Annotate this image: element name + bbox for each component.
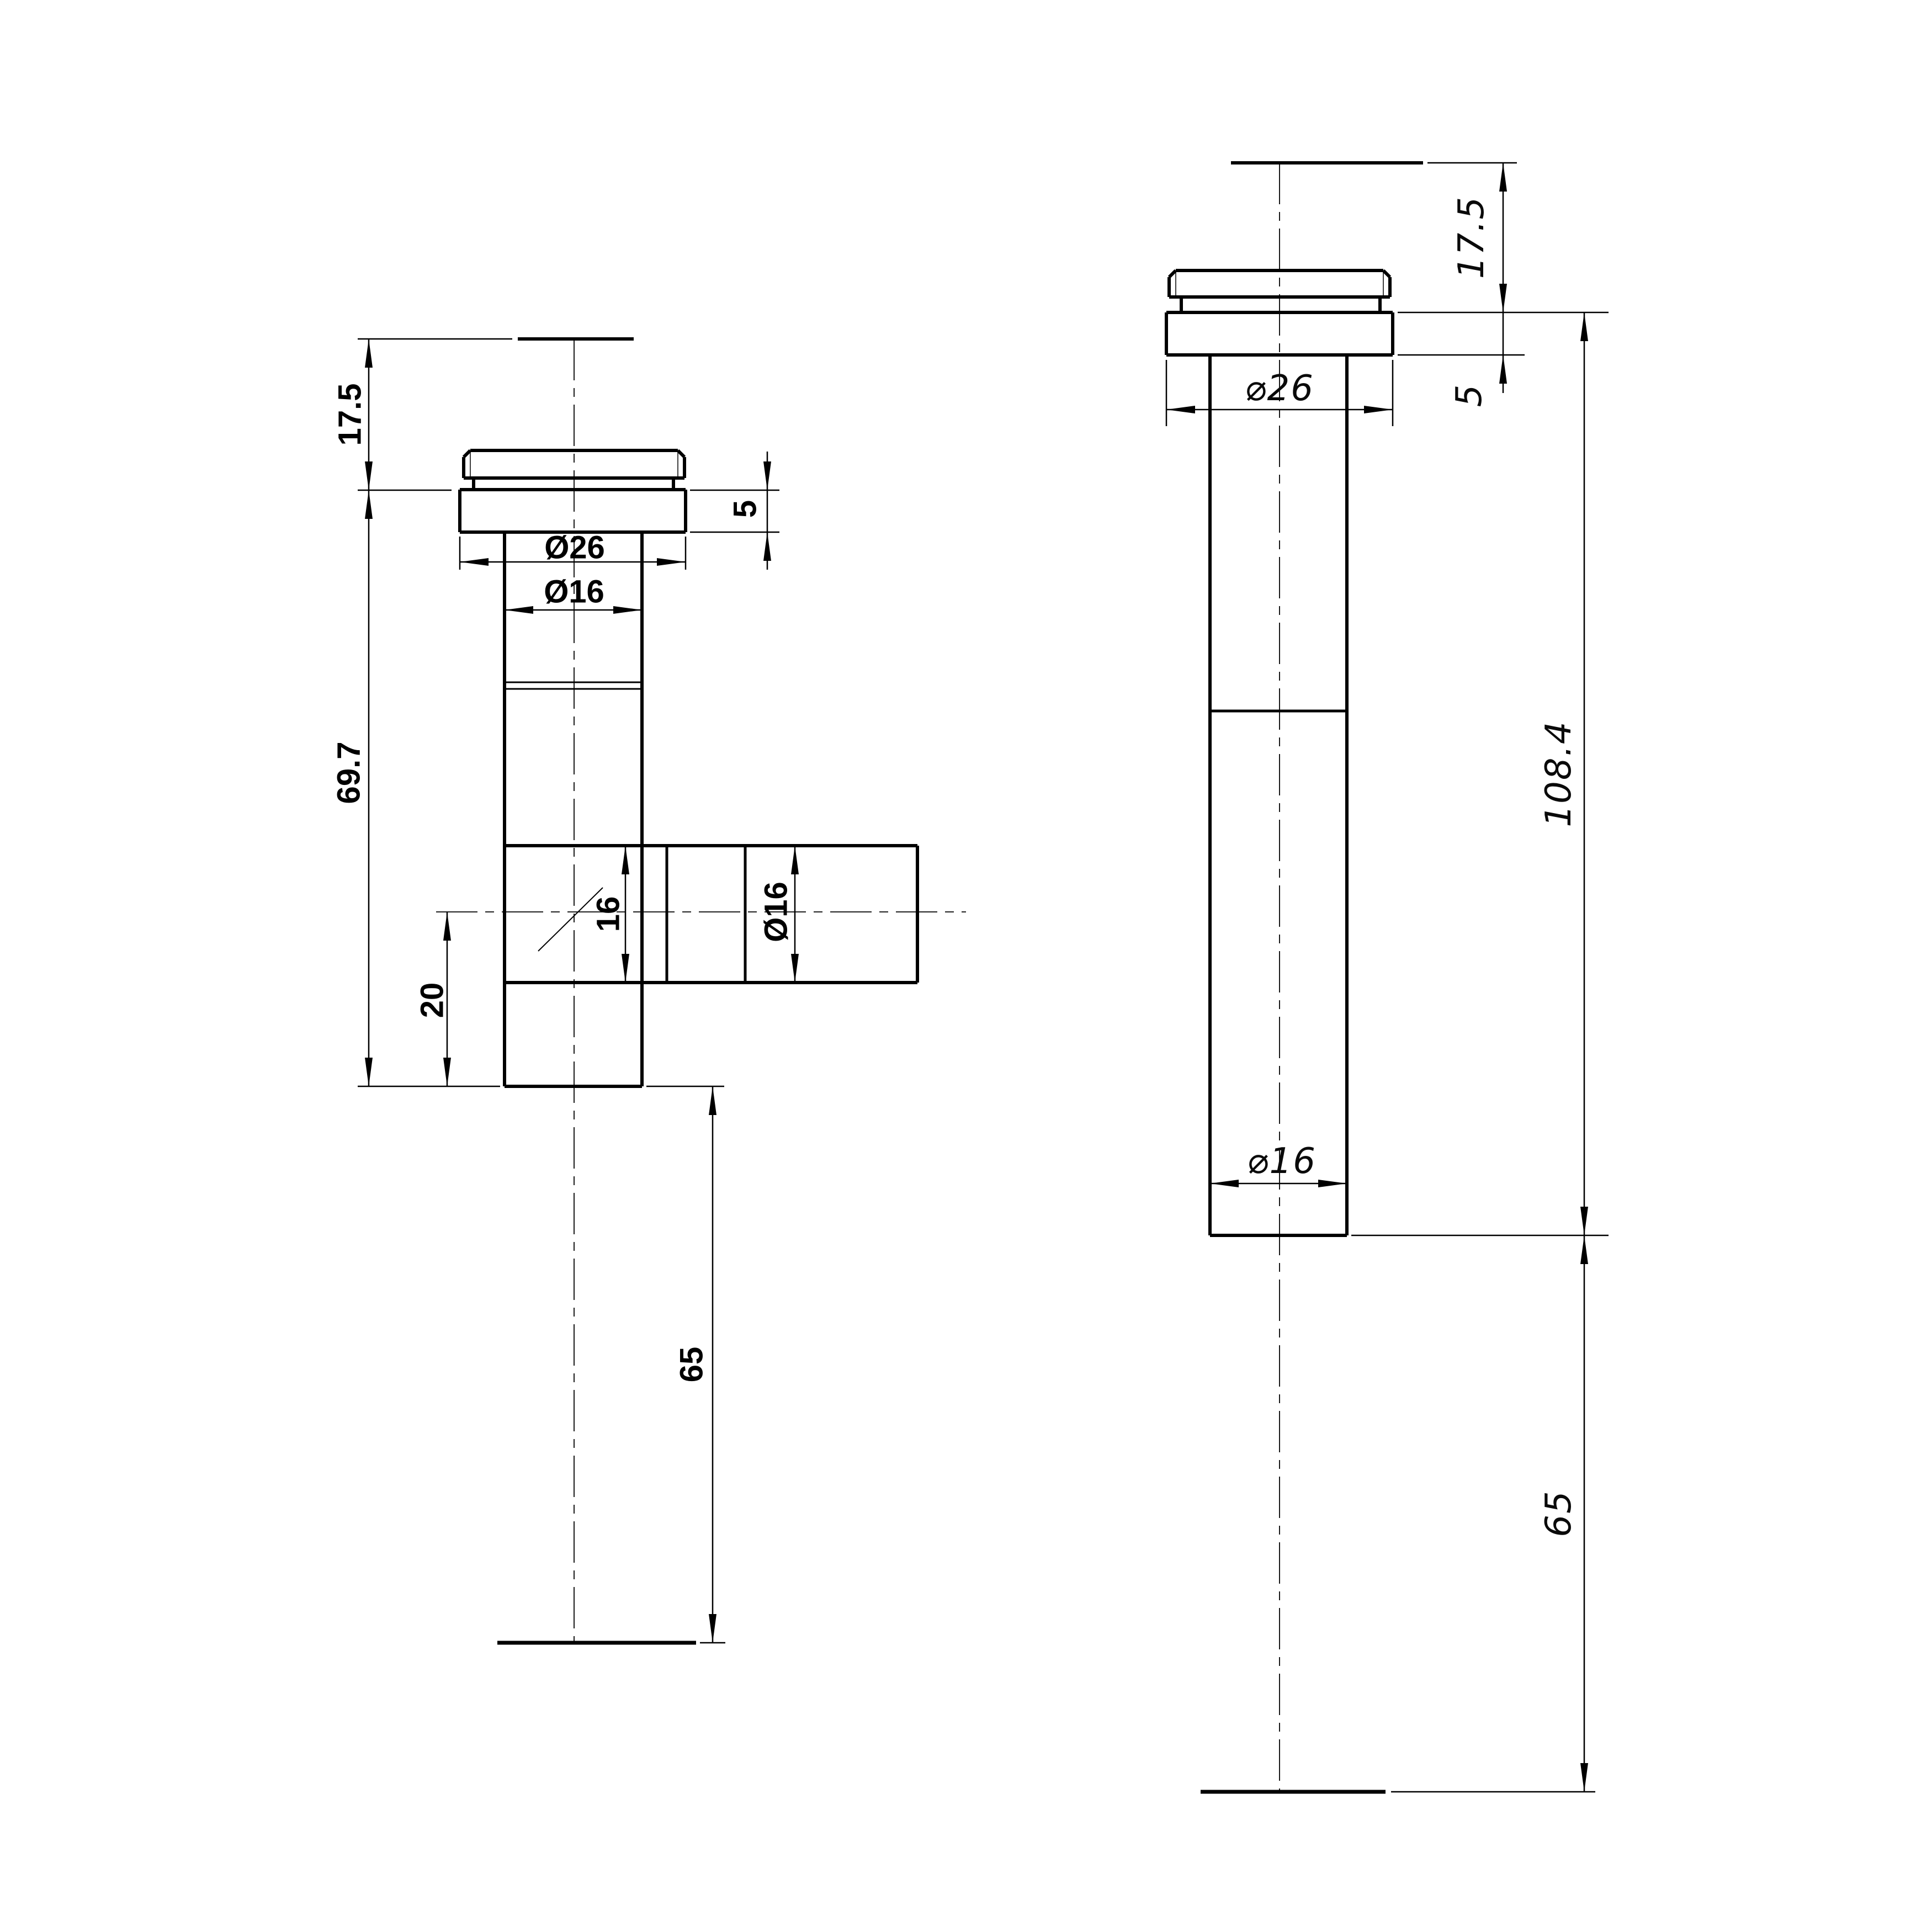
drawing-line-cap-chamfer-r xyxy=(678,450,684,457)
dimension-arrow-arr-69-7-bot xyxy=(365,1058,373,1086)
dim-label-17-5: 17.5 xyxy=(332,384,368,446)
dim-label-d26: Ø26 xyxy=(544,530,605,566)
dim-label-69-7: 69.7 xyxy=(331,742,367,804)
dimension-arrow-sv-arr-108-bot xyxy=(1580,1207,1588,1235)
dimension-arrow-sv-arr-d16-l xyxy=(1210,1180,1239,1187)
dimension-arrow-arr-d16arm-bot xyxy=(791,954,799,983)
dimension-arrow-arr-65-top xyxy=(709,1086,716,1115)
dimension-arrow-arr-d16arm-top xyxy=(791,846,799,874)
dimension-arrow-arr-69-7-top xyxy=(365,490,373,519)
dimension-arrow-sv-arr-65-bot xyxy=(1580,1763,1588,1792)
dim-label-65: 65 xyxy=(674,1347,710,1383)
dimension-arrow-arr-65-bot xyxy=(709,1614,716,1643)
sv-dim-label-5: 5 xyxy=(1449,384,1490,407)
dim-label-d16: Ø16 xyxy=(544,574,604,610)
dimension-arrow-sv-arr-108-top xyxy=(1580,312,1588,341)
dim-label-16: 16 xyxy=(591,896,627,932)
drawing-line-sv-cap-chamfer-r xyxy=(1383,270,1390,277)
sv-dim-label-d26: ⌀26 xyxy=(1245,368,1314,409)
dimension-arrow-arr-5-bot xyxy=(763,532,771,561)
dimension-arrow-sv-arr-17-5-bot xyxy=(1499,284,1507,312)
dimension-arrow-arr-17-5-bot xyxy=(365,461,373,490)
dimension-arrow-arr-d16-l xyxy=(505,606,533,614)
dimension-arrow-arr-d26-l xyxy=(460,558,489,566)
sv-dim-label-17-5: 17.5 xyxy=(1451,196,1492,279)
dimension-arrow-arr-20-top xyxy=(443,912,451,941)
dimension-arrow-arr-17-5-top xyxy=(365,339,373,368)
dimension-arrow-sv-arr-d16-r xyxy=(1318,1180,1347,1187)
dimension-arrow-arr-d16-r xyxy=(613,606,642,614)
sv-dim-label-108-4: 108.4 xyxy=(1538,720,1579,827)
drawing-line-cap-chamfer-l xyxy=(464,450,470,457)
dimension-arrow-sv-arr-17-5-top xyxy=(1499,163,1507,192)
dimension-arrow-arr-d26-r xyxy=(657,558,686,566)
sv-dim-label-d16: ⌀16 xyxy=(1247,1141,1317,1182)
dimension-arrow-arr-20-bot xyxy=(443,1058,451,1086)
dimension-arrow-sv-arr-d26-r xyxy=(1364,406,1393,413)
dimension-arrow-arr-5-top xyxy=(763,461,771,490)
dimension-arrow-sv-arr-65-top xyxy=(1580,1235,1588,1264)
engineering-drawing-canvas: 17.569.7Ø26Ø1616Ø162056517.55⌀26⌀16108.4… xyxy=(0,0,1932,1932)
dimension-arrow-sv-arr-d26-l xyxy=(1166,406,1195,413)
dim-label-20: 20 xyxy=(415,983,450,1018)
dim-label-d16-arm: Ø16 xyxy=(758,882,794,942)
drawing-line-sv-cap-chamfer-l xyxy=(1169,270,1176,277)
dim-label-5: 5 xyxy=(728,500,763,518)
sv-dim-label-65: 65 xyxy=(1538,1490,1579,1537)
drawing-sheet: 17.569.7Ø26Ø1616Ø162056517.55⌀26⌀16108.4… xyxy=(0,0,1932,1932)
dimension-arrow-arr-16-bot xyxy=(622,954,629,983)
dimension-arrow-arr-16-top xyxy=(622,846,629,874)
dimension-arrow-sv-arr-5-bot xyxy=(1499,355,1507,384)
